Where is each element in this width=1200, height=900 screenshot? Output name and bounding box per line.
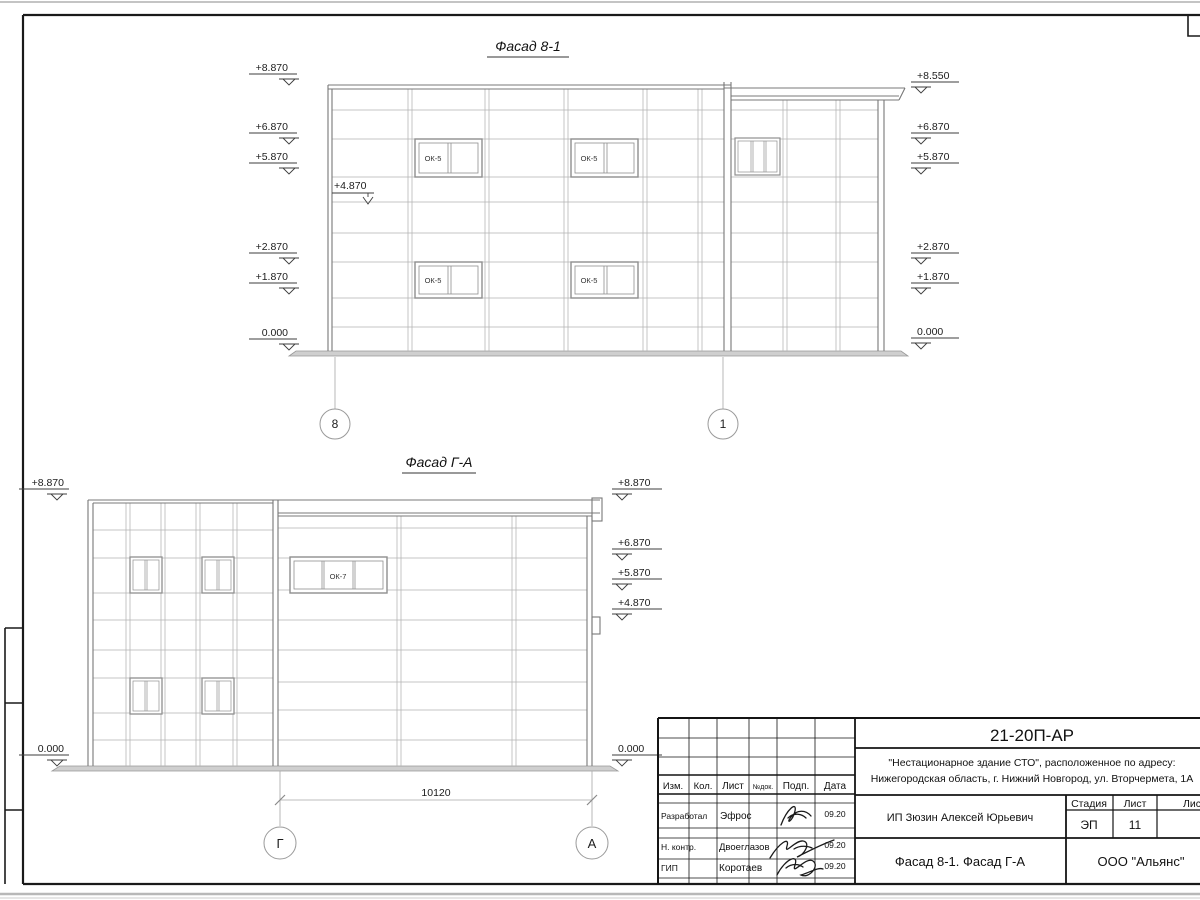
axis-bubble-label: 8: [332, 417, 339, 431]
elevation-marks-right: +8.550 +6.870 +5.870 +2.870 +1.870 0.000: [911, 70, 959, 349]
project-description-line1: "Нестационарное здание СТО", расположенн…: [888, 757, 1175, 769]
dimension-10120: 10120: [275, 771, 597, 826]
sheet-number: 11: [1129, 818, 1142, 832]
dimension-text: 10120: [421, 787, 450, 799]
elevation-mark-label: +8.870: [32, 477, 65, 489]
drawing-sheet: Фасад 8-1 ОК-5 ОК-5 ОК-5: [0, 0, 1200, 900]
window-small-lower-right: [202, 678, 234, 714]
elevation-mark-label: 0.000: [38, 743, 64, 755]
elevation-marks-left: +8.870 0.000: [19, 477, 69, 766]
row-date: 09.20: [824, 840, 846, 850]
elevation-mark-label: 0.000: [262, 327, 288, 339]
axis-marker-8: 8: [320, 357, 350, 439]
col-header-kol: Кол.: [694, 781, 713, 792]
panel-joints-vertical: [126, 503, 516, 766]
facade-g-a-drawing: Фасад Г-А: [19, 454, 662, 859]
signature-gip: [777, 859, 823, 876]
window-tag: ОК-5: [581, 154, 598, 163]
col-header-izm: Изм.: [663, 781, 683, 792]
row-name: Эфрос: [720, 810, 752, 822]
row-name: Коротаев: [719, 863, 762, 874]
sheets-header: Листов: [1183, 798, 1200, 810]
sheet-header: Лист: [1124, 798, 1147, 810]
building-outline: [88, 500, 592, 766]
stage-header: Стадия: [1071, 798, 1107, 810]
elevation-mark-label: +5.870: [256, 151, 289, 163]
elevation-mark-label: +4.870: [618, 597, 651, 609]
elevation-mark-label: +1.870: [256, 271, 289, 283]
row-role: Разработал: [661, 811, 707, 821]
col-header-ndok: №док.: [753, 784, 774, 791]
elevation-mark-label: +5.870: [917, 151, 950, 163]
drawing-canvas: Фасад 8-1 ОК-5 ОК-5 ОК-5: [0, 0, 1200, 900]
window-small-upper-left: [130, 557, 162, 593]
window-ok7: ОК-7: [290, 557, 387, 593]
row-role: Н. контр.: [661, 842, 696, 852]
row-date: 09.20: [824, 861, 846, 871]
window-ok5-lower-left: ОК-5: [415, 262, 482, 298]
axis-bubble-label: А: [588, 836, 597, 851]
project-description-line2: Нижегородская область, г. Нижний Новгоро…: [871, 773, 1194, 785]
row-role: ГИП: [661, 863, 678, 873]
stage-value: ЭП: [1080, 818, 1097, 832]
document-code: 21-20П-АР: [990, 726, 1074, 745]
col-header-data: Дата: [824, 781, 847, 792]
window-small-lower-left: [130, 678, 162, 714]
elevation-mark-label: +6.870: [618, 537, 651, 549]
row-date: 09.20: [824, 809, 846, 819]
canopy: [724, 88, 905, 100]
window-three-pane: [735, 138, 780, 175]
title-block: 21-20П-АР "Нестационарное здание СТО", р…: [658, 718, 1200, 884]
fascia-band: [278, 500, 600, 516]
axis-marker-1: 1: [708, 357, 738, 439]
elevation-marks-right: +8.870 +6.870 +5.870 +4.870 0.000: [612, 477, 662, 766]
elevation-mark-label: +6.870: [256, 121, 289, 133]
panel-joints-vertical: [408, 89, 840, 351]
axis-marker-a: А: [576, 827, 608, 859]
axis-bubble-label: 1: [720, 417, 727, 431]
col-header-podp: Подп.: [783, 781, 810, 792]
ground-line: [289, 351, 908, 356]
elevation-mark-label: +2.870: [917, 241, 950, 253]
elevation-mark-label: +8.870: [618, 477, 651, 489]
elevation-mark-label: +6.870: [917, 121, 950, 133]
wall-bracket: [592, 617, 600, 634]
window-ok5-upper-right: ОК-5: [571, 139, 638, 177]
elevation-mark-label: +4.870: [334, 180, 367, 192]
col-header-list: Лист: [722, 781, 744, 792]
elevation-mark-label: +8.870: [256, 62, 289, 74]
window-ok5-lower-right: ОК-5: [571, 262, 638, 298]
elevation-mark-inner: +4.870: [332, 180, 374, 204]
window-tag: ОК-5: [581, 276, 598, 285]
axis-marker-g: Г: [264, 827, 296, 859]
company-name: ООО "Альянс": [1098, 854, 1185, 869]
elevation-mark-label: +1.870: [917, 271, 950, 283]
elevation-mark-label: +2.870: [256, 241, 289, 253]
elevation-mark-label: +5.870: [618, 567, 651, 579]
fascia-end-cap: [592, 498, 602, 521]
elevation-mark-label: +8.550: [917, 70, 950, 82]
client-name: ИП Зюзин Алексей Юрьевич: [887, 812, 1034, 824]
elevation-mark-label: 0.000: [618, 743, 644, 755]
sheet-title: Фасад 8-1. Фасад Г-А: [895, 854, 1025, 869]
facade-g-a-title: Фасад Г-А: [406, 454, 473, 470]
window-ok5-upper-left: ОК-5: [415, 139, 482, 177]
signature-razrabotal: [781, 807, 811, 825]
row-name: Двоеглазов: [719, 842, 770, 853]
window-tag: ОК-5: [425, 276, 442, 285]
window-tag: ОК-5: [425, 154, 442, 163]
building-outline: [328, 82, 884, 351]
facade-8-1-title: Фасад 8-1: [495, 38, 561, 54]
window-tag: ОК-7: [330, 572, 347, 581]
elevation-marks-left: +8.870 +6.870 +5.870 +2.870 +1.870 0.000: [249, 62, 299, 350]
elevation-mark-label: 0.000: [917, 326, 943, 338]
window-small-upper-right: [202, 557, 234, 593]
axis-bubble-label: Г: [276, 836, 283, 851]
facade-8-1-drawing: Фасад 8-1 ОК-5 ОК-5 ОК-5: [249, 38, 959, 439]
ground-line: [52, 766, 618, 771]
